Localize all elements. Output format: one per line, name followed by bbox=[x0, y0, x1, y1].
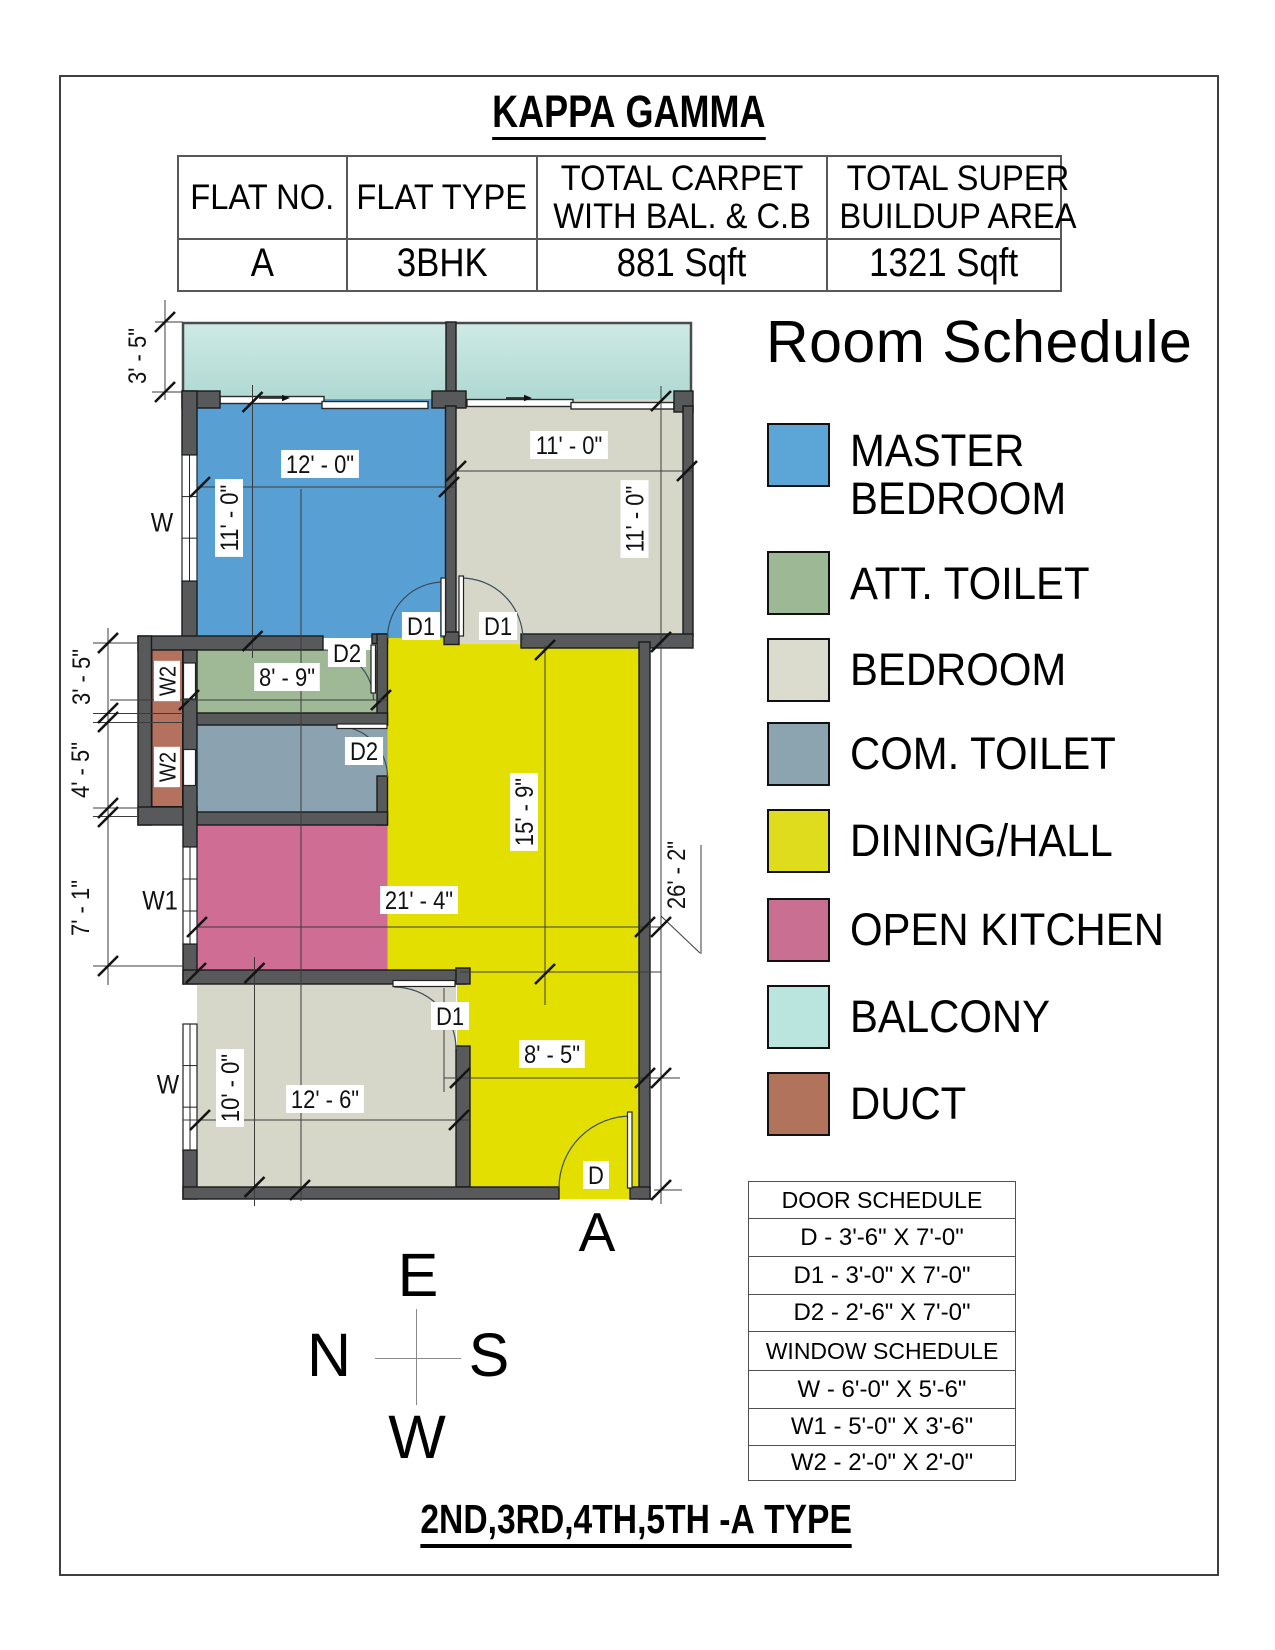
svg-text:W2: W2 bbox=[154, 752, 181, 782]
svg-text:8' - 5": 8' - 5" bbox=[524, 1041, 580, 1069]
svg-text:D1: D1 bbox=[436, 1003, 464, 1031]
svg-text:10' - 0": 10' - 0" bbox=[217, 1054, 245, 1122]
svg-text:12' - 6": 12' - 6" bbox=[291, 1086, 359, 1114]
svg-text:W: W bbox=[151, 508, 173, 538]
svg-text:W1: W1 bbox=[142, 886, 178, 916]
svg-text:D2: D2 bbox=[350, 738, 378, 766]
svg-text:15' - 9": 15' - 9" bbox=[511, 778, 539, 846]
svg-text:11' - 0": 11' - 0" bbox=[216, 485, 244, 552]
svg-text:D: D bbox=[588, 1162, 604, 1190]
svg-text:D2: D2 bbox=[333, 640, 361, 668]
svg-text:21' - 4": 21' - 4" bbox=[385, 887, 453, 915]
svg-text:8' - 9": 8' - 9" bbox=[259, 664, 315, 692]
svg-text:12' - 0": 12' - 0" bbox=[286, 451, 354, 479]
svg-text:4' - 5": 4' - 5" bbox=[67, 742, 95, 798]
svg-text:11' - 0": 11' - 0" bbox=[536, 432, 603, 460]
svg-text:3' - 5": 3' - 5" bbox=[68, 649, 96, 705]
svg-text:W: W bbox=[157, 1070, 179, 1100]
svg-text:D1: D1 bbox=[484, 613, 512, 641]
svg-text:26' - 2": 26' - 2" bbox=[663, 841, 691, 909]
svg-text:W2: W2 bbox=[154, 666, 181, 696]
svg-text:11' - 0": 11' - 0" bbox=[621, 486, 649, 553]
svg-text:7' - 1": 7' - 1" bbox=[67, 880, 95, 936]
svg-text:3' - 5": 3' - 5" bbox=[124, 328, 152, 384]
svg-text:D1: D1 bbox=[407, 613, 435, 641]
